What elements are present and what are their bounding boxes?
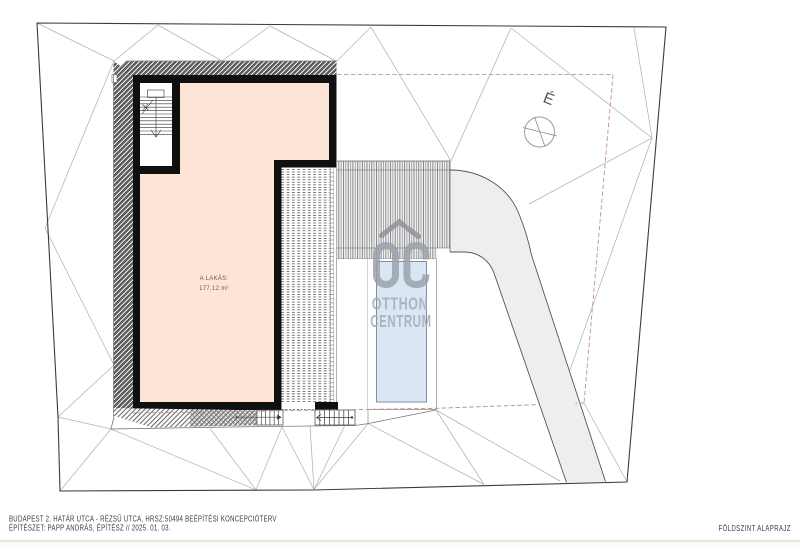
svg-text:CENTRUM: CENTRUM: [370, 313, 431, 332]
svg-text:A LAKÁS:: A LAKÁS:: [200, 275, 229, 282]
svg-text:177,12 m²: 177,12 m²: [199, 286, 229, 292]
svg-text:ÉPÍTÉSZET: PAPP ANDRÁS, ÉPÍTÉS: ÉPÍTÉSZET: PAPP ANDRÁS, ÉPÍTÉSZ // 2025.…: [9, 522, 171, 532]
svg-text:OTTHON: OTTHON: [372, 295, 429, 315]
svg-text:FÖLDSZINT ALAPRAJZ: FÖLDSZINT ALAPRAJZ: [719, 523, 791, 533]
